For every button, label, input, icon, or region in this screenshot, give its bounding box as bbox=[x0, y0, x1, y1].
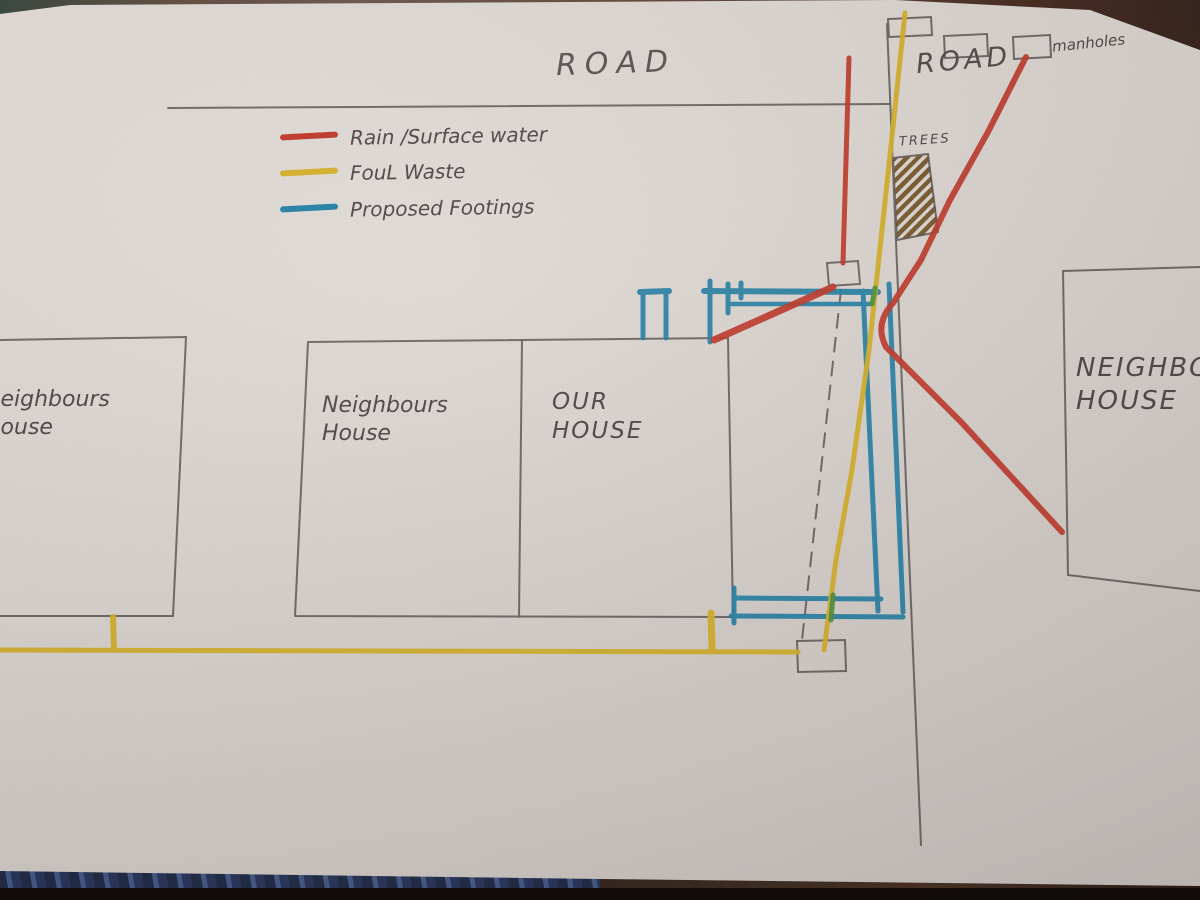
house-right-label: NEIGHBOUR HOUSE bbox=[1076, 352, 1200, 417]
foul-waste-swatch bbox=[280, 167, 338, 176]
manhole-box-bottom bbox=[797, 640, 846, 672]
house-left-label-line2: House bbox=[0, 414, 110, 442]
rain-water-main-run bbox=[881, 57, 1062, 532]
house-middle-label-line1: Neighbours bbox=[322, 392, 448, 420]
foul-waste-stub-our-house bbox=[711, 613, 712, 648]
house-middle-outline bbox=[295, 338, 733, 617]
footing-right-outer bbox=[889, 284, 903, 612]
rain-surface-water-swatch bbox=[280, 131, 338, 140]
foul-waste-stub-left-house bbox=[113, 617, 114, 650]
our-house-label-line2: HOUSE bbox=[552, 417, 643, 446]
house-left-label-line1: Neighbours bbox=[0, 386, 110, 414]
house-left-label: Neighbours House bbox=[0, 386, 110, 441]
rain-water-branch-to-house bbox=[714, 287, 833, 340]
overlap-mark-top bbox=[872, 288, 875, 304]
our-house-label: OUR HOUSE bbox=[552, 388, 643, 446]
road-edge-line bbox=[168, 104, 890, 108]
footing-bottom-inner bbox=[734, 598, 881, 599]
rain-water-riser bbox=[843, 58, 849, 263]
road-label-main: ROAD bbox=[555, 43, 676, 85]
foul-waste-label: FouL Waste bbox=[350, 159, 466, 185]
party-wall-line bbox=[519, 340, 522, 617]
legend-item-rain-surface-water: Rain /Surface water bbox=[280, 124, 547, 148]
house-right-outline bbox=[1063, 267, 1200, 591]
legend-item-proposed-footings: Proposed Footings bbox=[280, 196, 547, 220]
house-right-label-line1: NEIGHBOUR bbox=[1076, 352, 1200, 385]
site-plan-drawing bbox=[0, 0, 1200, 900]
rain-surface-water-label: Rain /Surface water bbox=[350, 122, 547, 149]
footing-top-outer bbox=[704, 291, 878, 292]
manhole-box-road-1 bbox=[888, 17, 932, 37]
proposed-footings-label: Proposed Footings bbox=[350, 194, 535, 221]
proposed-footings-swatch bbox=[280, 203, 338, 212]
overlap-mark-bottom bbox=[831, 595, 833, 620]
house-left-outline bbox=[0, 337, 186, 616]
manhole-box-road-3 bbox=[1013, 35, 1051, 59]
footing-small-top-bar bbox=[640, 291, 669, 292]
trees-outline bbox=[893, 154, 938, 240]
foul-waste-lateral bbox=[0, 650, 798, 652]
legend: Rain /Surface water FouL Waste Proposed … bbox=[280, 124, 547, 232]
legend-item-foul-waste: FouL Waste bbox=[280, 160, 547, 184]
house-middle-label-line2: House bbox=[322, 420, 448, 448]
our-house-label-line1: OUR bbox=[552, 388, 643, 417]
house-middle-label: Neighbours House bbox=[322, 392, 448, 447]
dashed-drain-line bbox=[802, 290, 841, 640]
footing-bottom-outer bbox=[731, 616, 903, 617]
house-right-label-line2: HOUSE bbox=[1076, 385, 1200, 418]
